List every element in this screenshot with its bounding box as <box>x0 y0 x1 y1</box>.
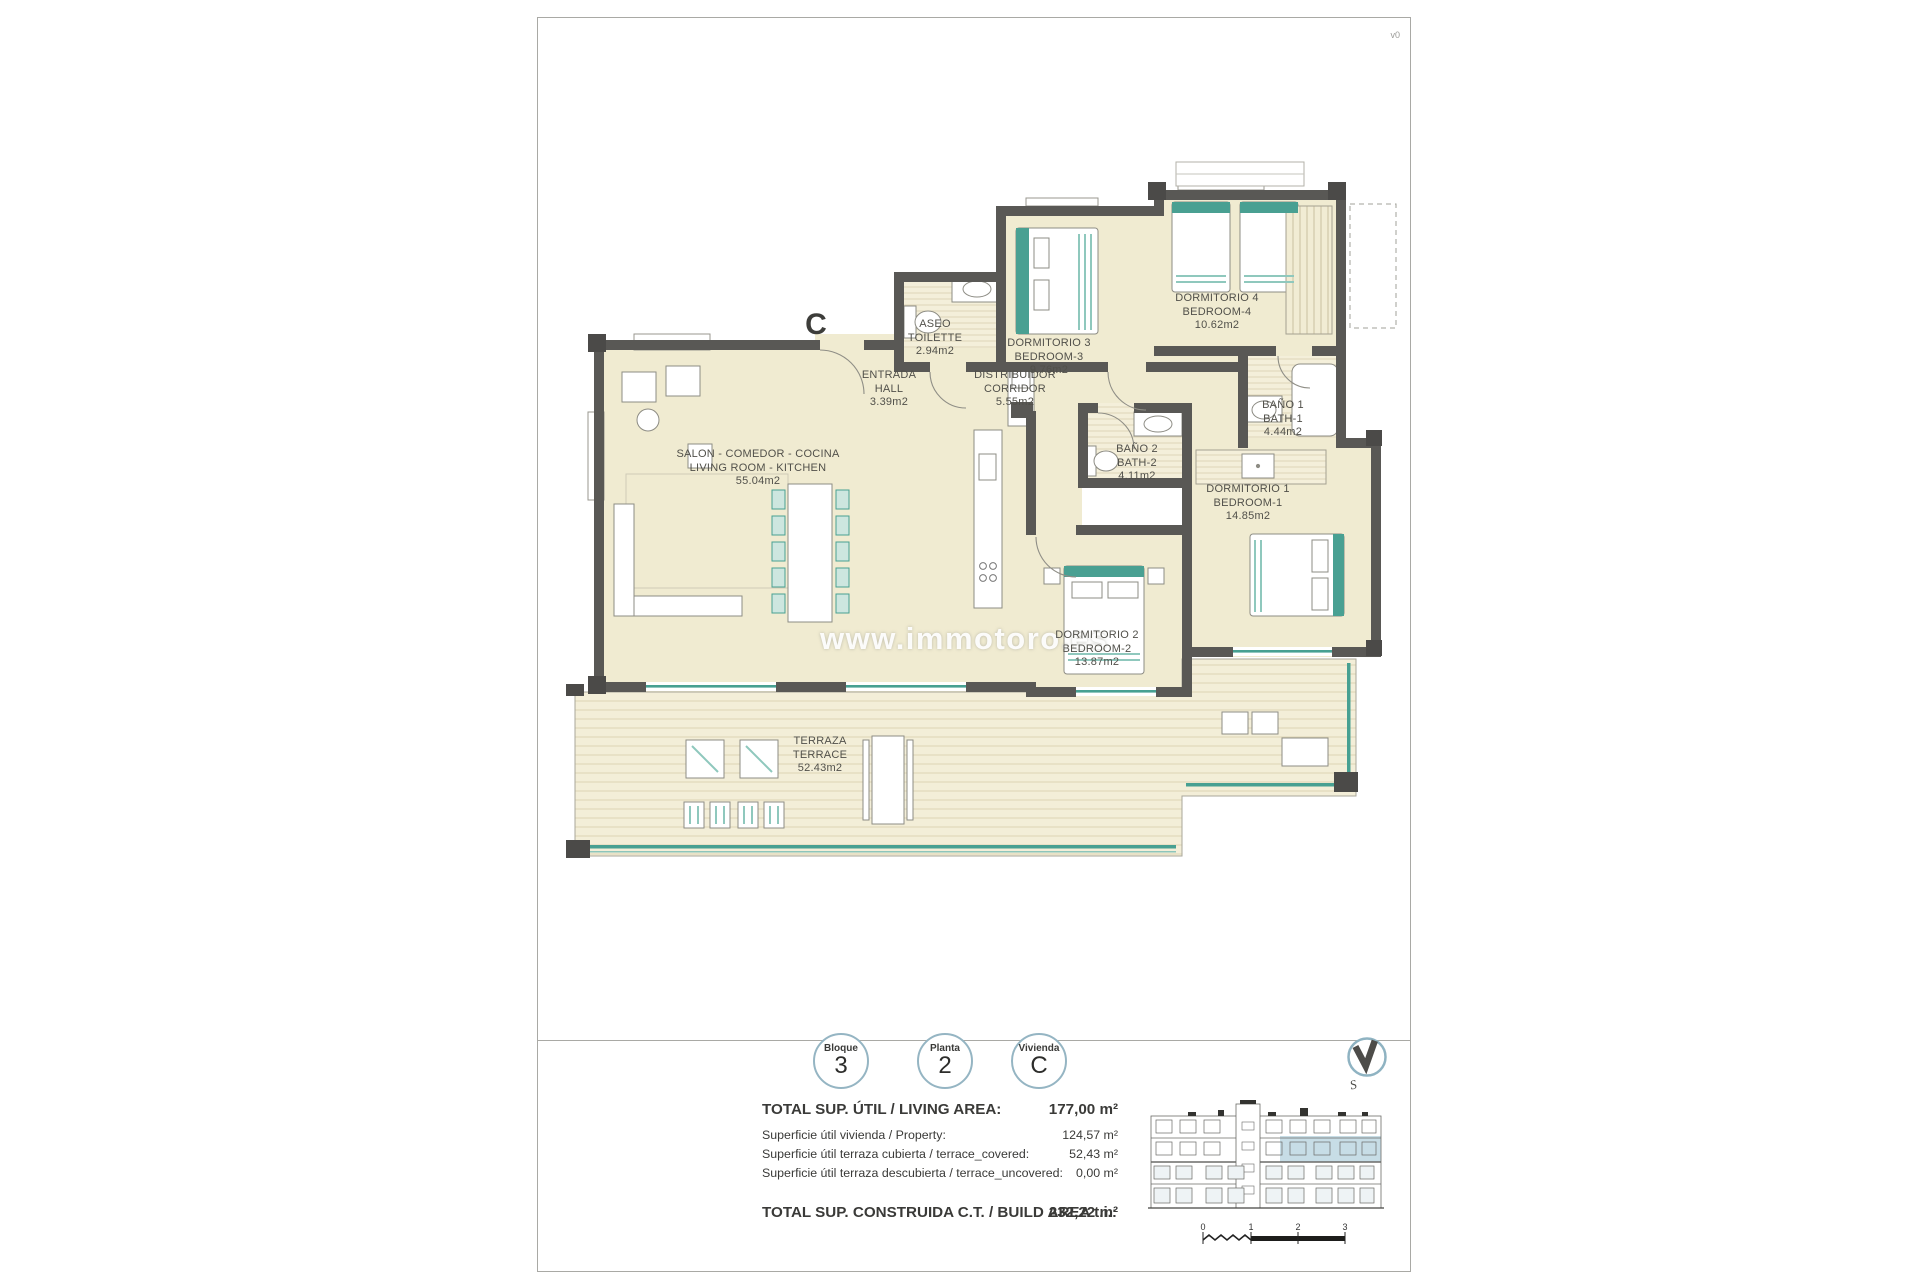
drawing-sheet: v0 <box>537 17 1411 1272</box>
badge-vivienda: Vivienda C <box>1011 1033 1067 1089</box>
floor-plan-drawing <box>538 18 1410 1040</box>
summary-row-terrace-covered: Superficie útil terraza cubierta / terra… <box>762 1147 1118 1166</box>
room-label-salon: SALON - COMEDOR - COCINALIVING ROOM - KI… <box>676 448 839 489</box>
area-summary: TOTAL SUP. ÚTIL / LIVING AREA:177,00 m² … <box>762 1101 1118 1223</box>
room-label-entrada: ENTRADAHALL3.39m2 <box>862 369 916 410</box>
room-label-dormitorio-1: DORMITORIO 1BEDROOM-114.85m2 <box>1206 483 1289 524</box>
compass-icon <box>1346 1036 1388 1078</box>
scale-tick-1: 1 <box>1248 1222 1253 1232</box>
room-label-distribuidor: DISTRIBUIDORCORRIDOR5.55m2 <box>974 369 1056 410</box>
room-label-dormitorio-2: DORMITORIO 2BEDROOM-213.87m2 <box>1055 629 1138 670</box>
room-label-bano-2: BAÑO 2BATH-24.11m2 <box>1116 443 1158 484</box>
unit-marker: C <box>796 308 836 342</box>
badge-planta: Planta 2 <box>917 1033 973 1089</box>
summary-row-build-area: TOTAL SUP. CONSTRUIDA C.T. / BUILD AREA … <box>762 1204 1118 1223</box>
summary-row-living-area: TOTAL SUP. ÚTIL / LIVING AREA:177,00 m² <box>762 1101 1118 1128</box>
scale-tick-3: 3 <box>1342 1222 1347 1232</box>
summary-row-terrace-uncovered: Superficie útil terraza descubierta / te… <box>762 1166 1118 1185</box>
scale-tick-0: 0 <box>1200 1222 1205 1232</box>
room-label-aseo: ASEOTOILETTE2.94m2 <box>908 318 962 359</box>
room-label-dormitorio-4: DORMITORIO 4BEDROOM-410.62m2 <box>1175 292 1258 333</box>
scale-tick-2: 2 <box>1295 1222 1300 1232</box>
summary-row-property: Superficie útil vivienda / Property:124,… <box>762 1128 1118 1147</box>
page: { "meta": { "version": "v0" }, "plan": {… <box>0 0 1920 1280</box>
building-elevation: 0 1 2 3 <box>1148 1092 1388 1262</box>
badge-bloque: Bloque 3 <box>813 1033 869 1089</box>
scale-bar: 0 1 2 3 <box>1200 1222 1347 1244</box>
title-block-divider <box>538 1040 1410 1041</box>
room-label-terraza: TERRAZATERRACE52.43m2 <box>793 735 847 776</box>
room-label-bano-1: BAÑO 1BATH-14.44m2 <box>1262 399 1304 440</box>
